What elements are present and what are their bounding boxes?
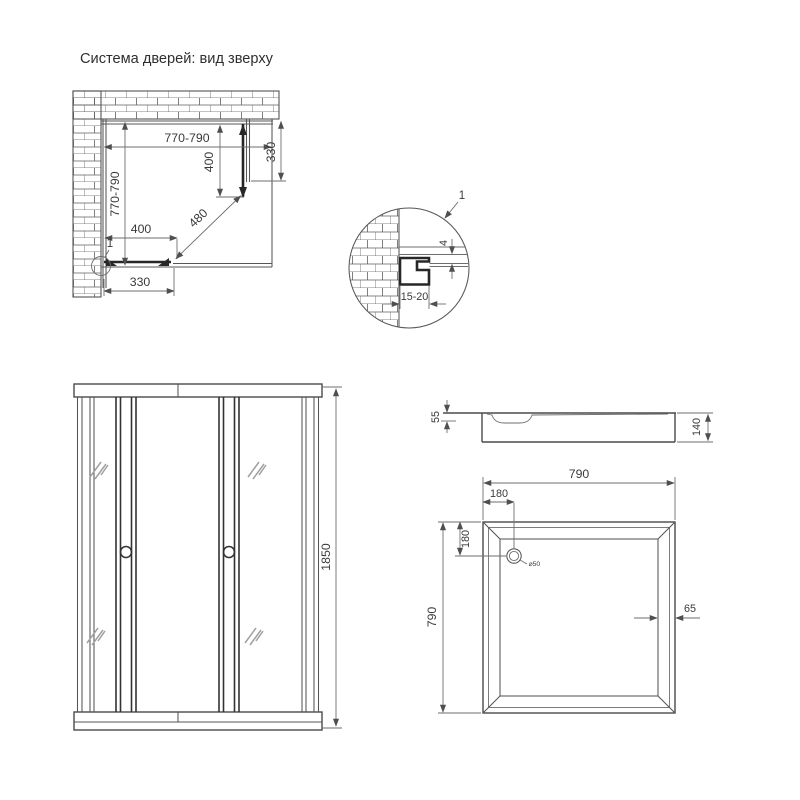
plan-right-door-dim-label: 400 [202, 152, 216, 173]
drain-offset-x-label: 180 [490, 488, 508, 500]
technical-drawing: Система дверей: вид зверху 770-790 770-7… [0, 0, 800, 800]
detail-frame-lines [399, 247, 469, 255]
front-bottom-rail [74, 712, 322, 730]
detail-gap-dim-label: 4 [438, 240, 450, 246]
tray-side-view: 55 140 [430, 400, 713, 442]
plan-top-frame [101, 121, 273, 124]
tray-side-outline [443, 413, 676, 442]
tray-rim-dim-label: 65 [684, 603, 696, 615]
plan-right-panel-dim-label: 330 [264, 142, 278, 163]
detail-wall-profile [400, 258, 429, 285]
tray-side-basin [487, 414, 668, 423]
drawing-title: Система дверей: вид зверху [80, 51, 274, 67]
detail-profile-range-label: 15-20 [401, 291, 429, 303]
tray-mid-edge [489, 528, 670, 708]
front-view: 1850 [74, 384, 342, 730]
front-side-frames [78, 397, 319, 712]
tray-height-dim-label: 140 [691, 418, 703, 436]
front-top-rail [74, 384, 322, 397]
detail-callout-label: 1 [459, 190, 465, 202]
plan-detail-callout-label: 1 [107, 238, 113, 250]
plan-bottom-panel-dim-label: 330 [130, 275, 151, 289]
tray-top-view: ⌀50 790 180 180 790 65 [425, 467, 700, 713]
plan-width-dim-label: 770-790 [164, 131, 209, 145]
drain-offset-y-label: 180 [460, 530, 472, 548]
front-fixed-stiles [90, 397, 306, 712]
spec-sheet: Система дверей: вид зверху 770-790 770-7… [0, 0, 800, 800]
front-door-stiles [116, 397, 239, 712]
tray-depth-dim-label: 790 [425, 607, 439, 628]
front-right-door-handle [224, 547, 235, 558]
glass-reflection [245, 628, 263, 645]
plan-wall-top [73, 91, 279, 119]
glass-reflection [248, 462, 266, 479]
plan-right-panel [247, 119, 250, 182]
plan-diagonal-dim-label: 480 [186, 206, 211, 230]
plan-bottom-door-dim-label: 400 [131, 222, 152, 236]
detail-glass-lines [430, 264, 469, 267]
tray-outer-edge [483, 522, 675, 713]
plan-view: 770-790 770-790 400 330 400 330 480 1 [73, 91, 286, 297]
detail-wall [350, 206, 399, 330]
tray-corner-miters [483, 522, 675, 713]
detail-view: 4 15-20 1 [349, 190, 469, 330]
front-height-dim-label: 1850 [319, 543, 333, 571]
tray-basin-depth-label: 55 [430, 411, 442, 423]
glass-reflection [90, 462, 108, 479]
plan-wall-left [73, 91, 101, 297]
front-left-door-handle [121, 547, 132, 558]
plan-depth-dim-label: 770-790 [108, 171, 122, 216]
tray-width-dim-label: 790 [569, 467, 590, 481]
drain-diameter-label: ⌀50 [529, 561, 541, 568]
